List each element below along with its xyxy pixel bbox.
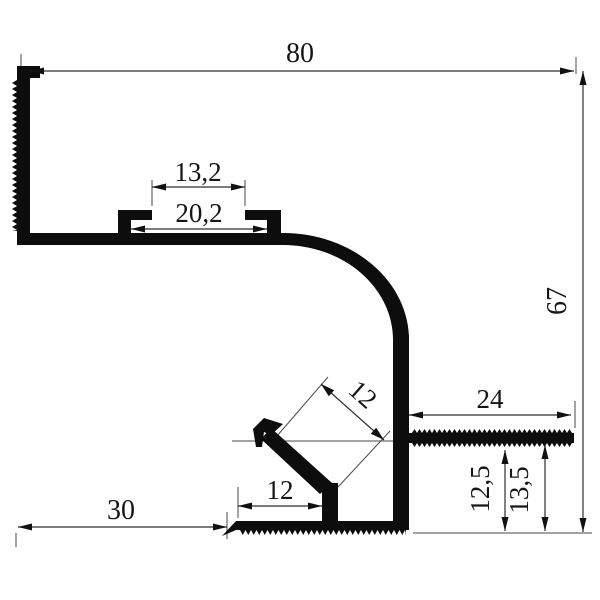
- dim-80-value: 80: [286, 38, 314, 69]
- dim12diag-ext-upper: [277, 377, 328, 436]
- dim-20-2-arrow-left-icon: [131, 226, 145, 233]
- dim-12-5-arrow-bottom-icon: [502, 517, 509, 531]
- left-wall-serration-icon: [12, 80, 17, 231]
- base-serration-icon: [240, 530, 406, 535]
- dim-67-arrow-top-icon: [580, 71, 587, 85]
- dim-67: 67: [542, 71, 587, 532]
- dim-12-5: 12,5: [465, 450, 509, 531]
- dim-67-value: 67: [542, 287, 573, 315]
- bottom-base: [236, 521, 409, 530]
- dim-13-2-value: 13,2: [174, 157, 221, 187]
- right-wall: [393, 335, 409, 530]
- drawing-canvas: 80 67 13,2 20,2 24 12 12,5: [0, 0, 600, 600]
- dim-30-arrow-right-icon: [213, 524, 227, 531]
- dim-12-diagonal: 12: [321, 374, 384, 440]
- dim-24-value: 24: [477, 384, 505, 414]
- dim-80: 80: [30, 38, 574, 75]
- corner-curve: [283, 233, 409, 340]
- left-wall: [17, 66, 30, 245]
- flange-bottom-serration-icon: [412, 443, 572, 447]
- technical-drawing: 80 67 13,2 20,2 24 12 12,5: [0, 0, 600, 600]
- dim-12-bottom-arrow-right-icon: [308, 503, 322, 510]
- dim-67-arrow-bottom-icon: [580, 518, 587, 532]
- dim-13-5-arrow-bottom-icon: [542, 517, 549, 531]
- dim-13-5-value: 13,5: [504, 466, 534, 513]
- dim-13-2-arrow-left-icon: [152, 184, 166, 191]
- dim-30-value: 30: [107, 495, 135, 526]
- dim-13-2-arrow-right-icon: [231, 184, 245, 191]
- dim-20-2-value: 20,2: [175, 198, 222, 228]
- top-web: [17, 233, 283, 245]
- dim-12-5-value: 12,5: [465, 465, 495, 512]
- dim-80-arrow-right-icon: [560, 68, 574, 75]
- dim12diag-ext-lower: [338, 431, 390, 487]
- dim-12-5-arrow-top-icon: [502, 450, 509, 464]
- dim-24-arrow-left-icon: [409, 412, 423, 419]
- dim-13-5: 13,5: [504, 445, 549, 531]
- channel-lip-left: [118, 210, 152, 235]
- dim-30: 30: [18, 495, 227, 531]
- dim-24-arrow-right-icon: [557, 412, 571, 419]
- dim-12-bottom-arrow-left-icon: [238, 503, 252, 510]
- dim-13-5-arrow-top-icon: [542, 445, 549, 459]
- dim-12-bottom-value: 12: [267, 475, 294, 505]
- dim-30-arrow-left-icon: [18, 524, 32, 531]
- flange-top-serration-icon: [412, 429, 572, 433]
- base-chamfer: [222, 521, 236, 536]
- channel-lip-right: [245, 210, 281, 235]
- dim-13-2: 13,2: [152, 157, 245, 191]
- dim-20-2-arrow-right-icon: [253, 226, 267, 233]
- right-flange: [409, 433, 574, 443]
- dim-24: 24: [409, 384, 571, 419]
